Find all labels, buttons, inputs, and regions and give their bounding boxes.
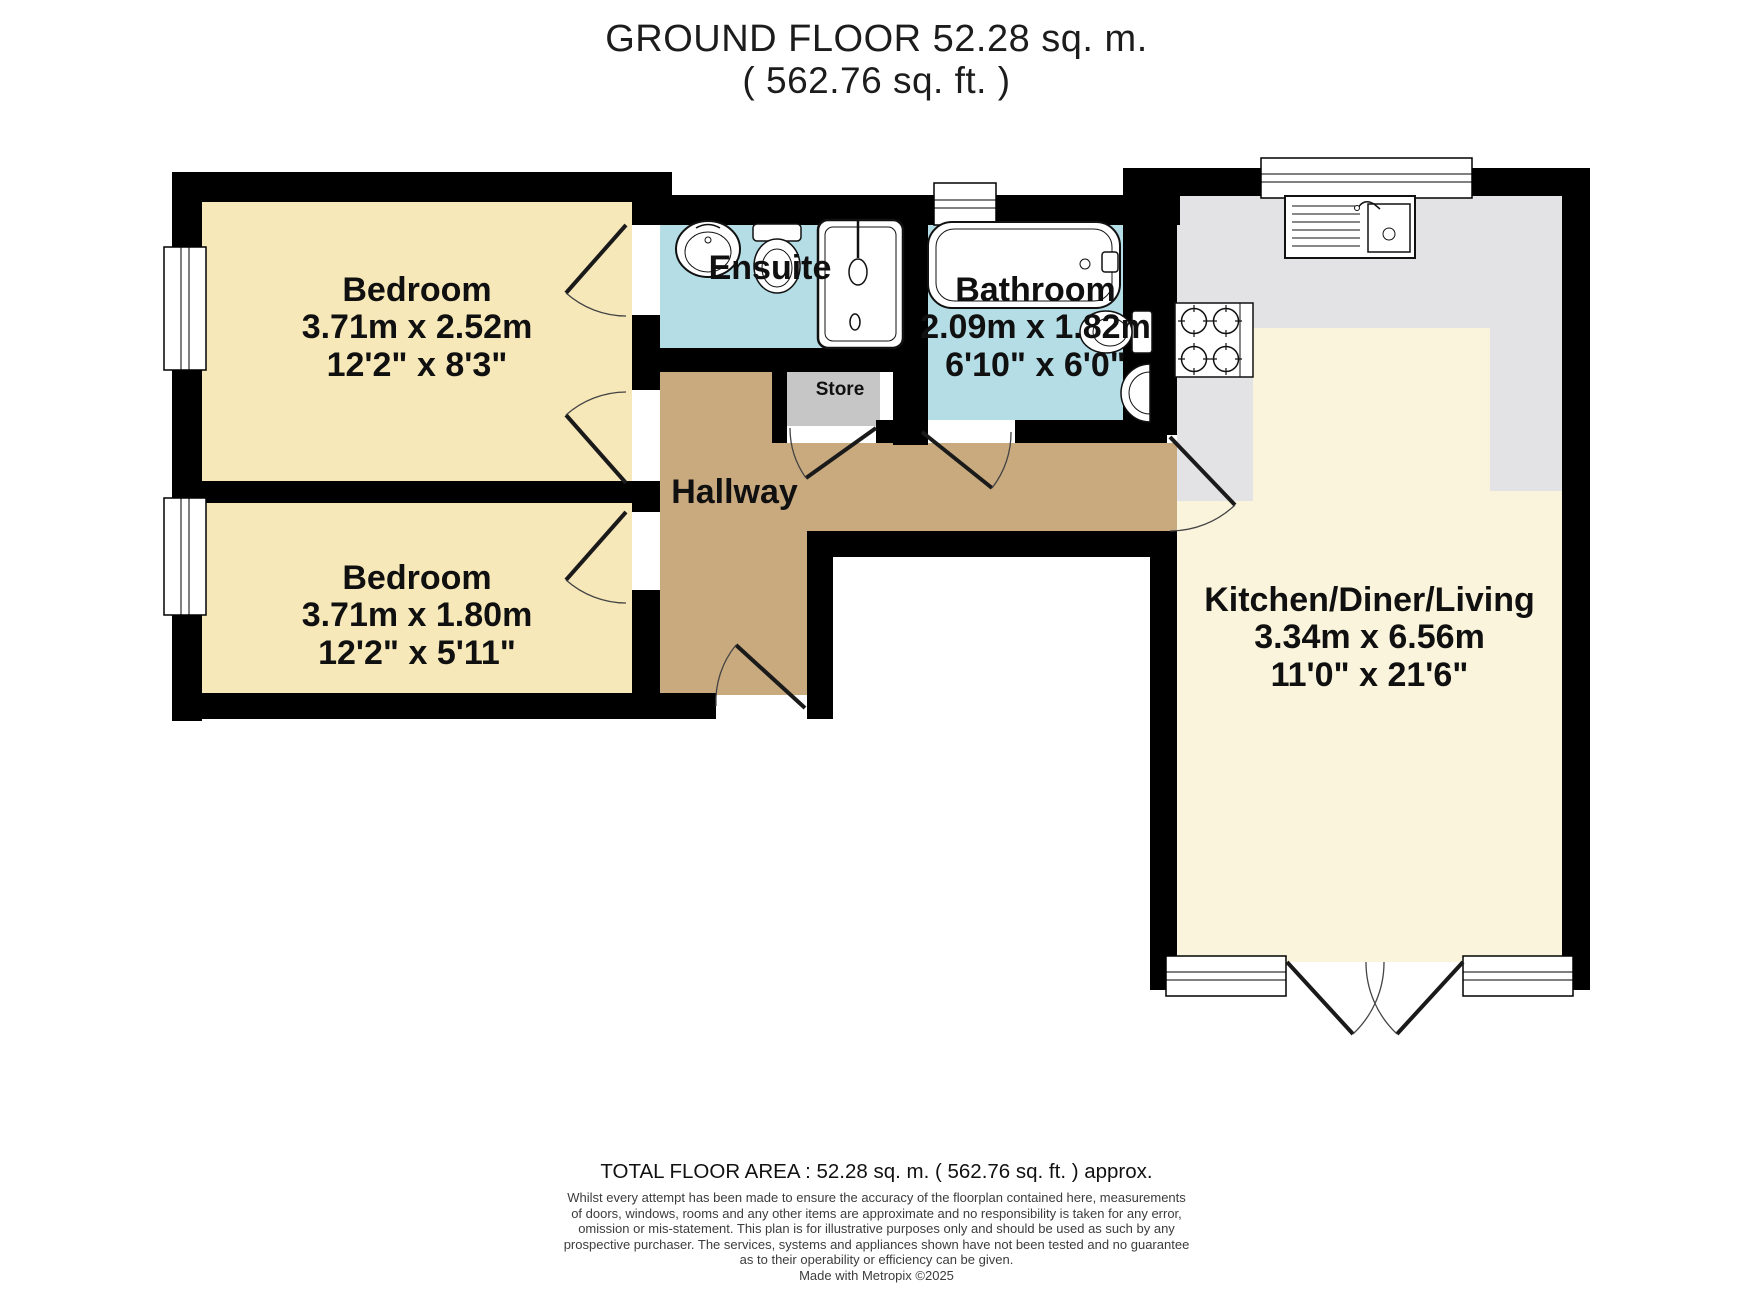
room-size-metric: 2.09m x 1.82m xyxy=(913,309,1158,346)
room-size-metric: 3.71m x 2.52m xyxy=(202,309,632,346)
room-name: Bathroom xyxy=(913,272,1158,309)
disclaimer-line: Whilst every attempt has been made to en… xyxy=(0,1190,1753,1206)
ensuite-label: Ensuite xyxy=(645,250,895,287)
room-size-metric: 3.71m x 1.80m xyxy=(202,597,632,634)
credit-line: Made with Metropix ©2025 xyxy=(0,1268,1753,1284)
room-name: Kitchen/Diner/Living xyxy=(1177,582,1562,619)
kitchen-diner-living-label: Kitchen/Diner/Living 3.34m x 6.56m 11'0"… xyxy=(1177,582,1562,694)
room-size-imperial: 12'2" x 8'3" xyxy=(202,347,632,384)
window xyxy=(164,498,206,615)
hob-icon xyxy=(1175,303,1253,377)
room-name: Hallway xyxy=(637,474,832,511)
disclaimer-line: omission or mis-statement. This plan is … xyxy=(0,1221,1753,1237)
window xyxy=(1463,956,1573,996)
room-size-imperial: 6'10" x 6'0" xyxy=(913,347,1158,384)
window xyxy=(1166,956,1286,996)
room-name: Ensuite xyxy=(645,250,895,287)
room-size-imperial: 11'0" x 21'6" xyxy=(1177,657,1562,694)
room-name: Bedroom xyxy=(202,272,632,309)
window xyxy=(164,247,206,370)
disclaimer-line: of doors, windows, rooms and any other i… xyxy=(0,1206,1753,1222)
floorplan-page: GROUND FLOOR 52.28 sq. m. ( 562.76 sq. f… xyxy=(0,0,1753,1298)
window xyxy=(1261,158,1472,198)
disclaimer-line: prospective purchaser. The services, sys… xyxy=(0,1237,1753,1253)
hallway-label: Hallway xyxy=(637,474,832,511)
kitchen-counter-right xyxy=(1490,196,1562,491)
bedroom-top-label: Bedroom 3.71m x 2.52m 12'2" x 8'3" xyxy=(202,272,632,384)
total-floor-area: TOTAL FLOOR AREA : 52.28 sq. m. ( 562.76… xyxy=(0,1160,1753,1184)
room-name: Store xyxy=(787,380,893,401)
bedroom-bottom-label: Bedroom 3.71m x 1.80m 12'2" x 5'11" xyxy=(202,560,632,672)
disclaimer: Whilst every attempt has been made to en… xyxy=(0,1190,1753,1284)
room-size-imperial: 12'2" x 5'11" xyxy=(202,635,632,672)
kitchen-sink-icon xyxy=(1285,196,1415,258)
room-name: Bedroom xyxy=(202,560,632,597)
disclaimer-line: as to their operability or efficiency ca… xyxy=(0,1252,1753,1268)
window xyxy=(934,183,996,225)
room-size-metric: 3.34m x 6.56m xyxy=(1177,619,1562,656)
french-door-swing xyxy=(1287,962,1463,1034)
bathroom-label: Bathroom 2.09m x 1.82m 6'10" x 6'0" xyxy=(913,272,1158,384)
store-label: Store xyxy=(787,380,893,401)
